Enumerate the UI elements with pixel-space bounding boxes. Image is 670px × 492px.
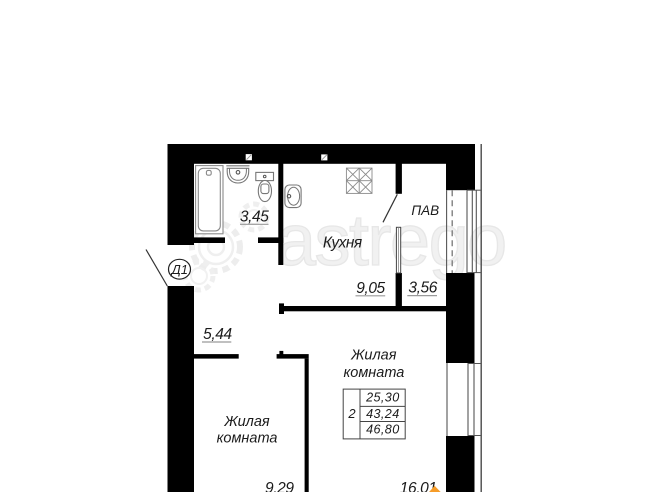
svg-text:astrego: astrego	[276, 201, 506, 281]
svg-text:комната: комната	[343, 365, 404, 381]
svg-text:3,45: 3,45	[240, 208, 269, 225]
svg-text:5,44: 5,44	[203, 326, 232, 343]
svg-text:43,24: 43,24	[366, 407, 400, 421]
svg-text:46,80: 46,80	[366, 422, 400, 436]
svg-text:Кухня: Кухня	[323, 234, 362, 251]
svg-text:2: 2	[347, 406, 356, 421]
svg-text:Жилая: Жилая	[223, 414, 270, 430]
svg-text:3,56: 3,56	[408, 279, 437, 296]
svg-text:9,05: 9,05	[356, 280, 385, 297]
svg-text:9,29: 9,29	[265, 480, 294, 492]
svg-text:комната: комната	[217, 431, 278, 447]
svg-text:Д1: Д1	[170, 262, 188, 277]
svg-text:Жилая: Жилая	[350, 348, 397, 364]
svg-text:25,30: 25,30	[365, 391, 400, 405]
svg-text:ПАВ: ПАВ	[411, 203, 439, 218]
